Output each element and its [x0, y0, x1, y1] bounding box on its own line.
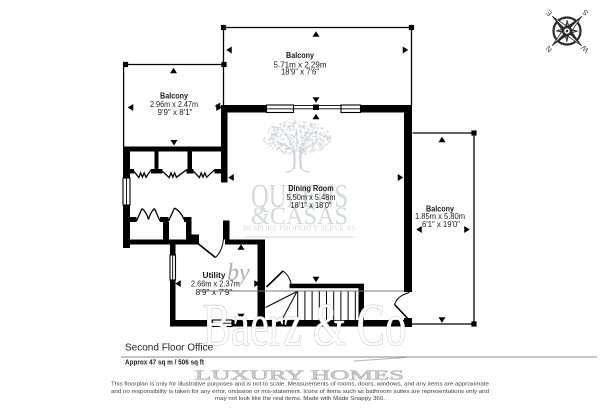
svg-text:may not look like the real ite: may not look like the real items. Made w…: [215, 396, 385, 402]
svg-text:Balcony: Balcony: [160, 91, 188, 100]
svg-text:Balcony: Balcony: [286, 51, 314, 60]
svg-text:18'9" x 7'6": 18'9" x 7'6": [281, 67, 319, 76]
svg-text:18'1" x 18'0": 18'1" x 18'0": [291, 201, 332, 210]
svg-text:Dining Room: Dining Room: [288, 184, 334, 193]
svg-text:6'1" x 19'0": 6'1" x 19'0": [422, 220, 460, 229]
svg-text:and no responsibility is taken: and no responsibility is taken for any e…: [111, 389, 489, 395]
svg-text:9'9" x 8'1": 9'9" x 8'1": [158, 108, 193, 117]
svg-text:Approx 47 sq m / 506 sq ft: Approx 47 sq m / 506 sq ft: [125, 360, 205, 367]
svg-text:Baerz & Co: Baerz & Co: [203, 292, 407, 358]
svg-text:This floorplan is only for ill: This floorplan is only for illustrative …: [111, 382, 490, 388]
svg-text:by: by: [227, 260, 250, 286]
svg-text:BESPOKE PROPERTY SERVICES: BESPOKE PROPERTY SERVICES: [243, 225, 356, 233]
svg-text:Second Floor Office: Second Floor Office: [125, 343, 214, 354]
